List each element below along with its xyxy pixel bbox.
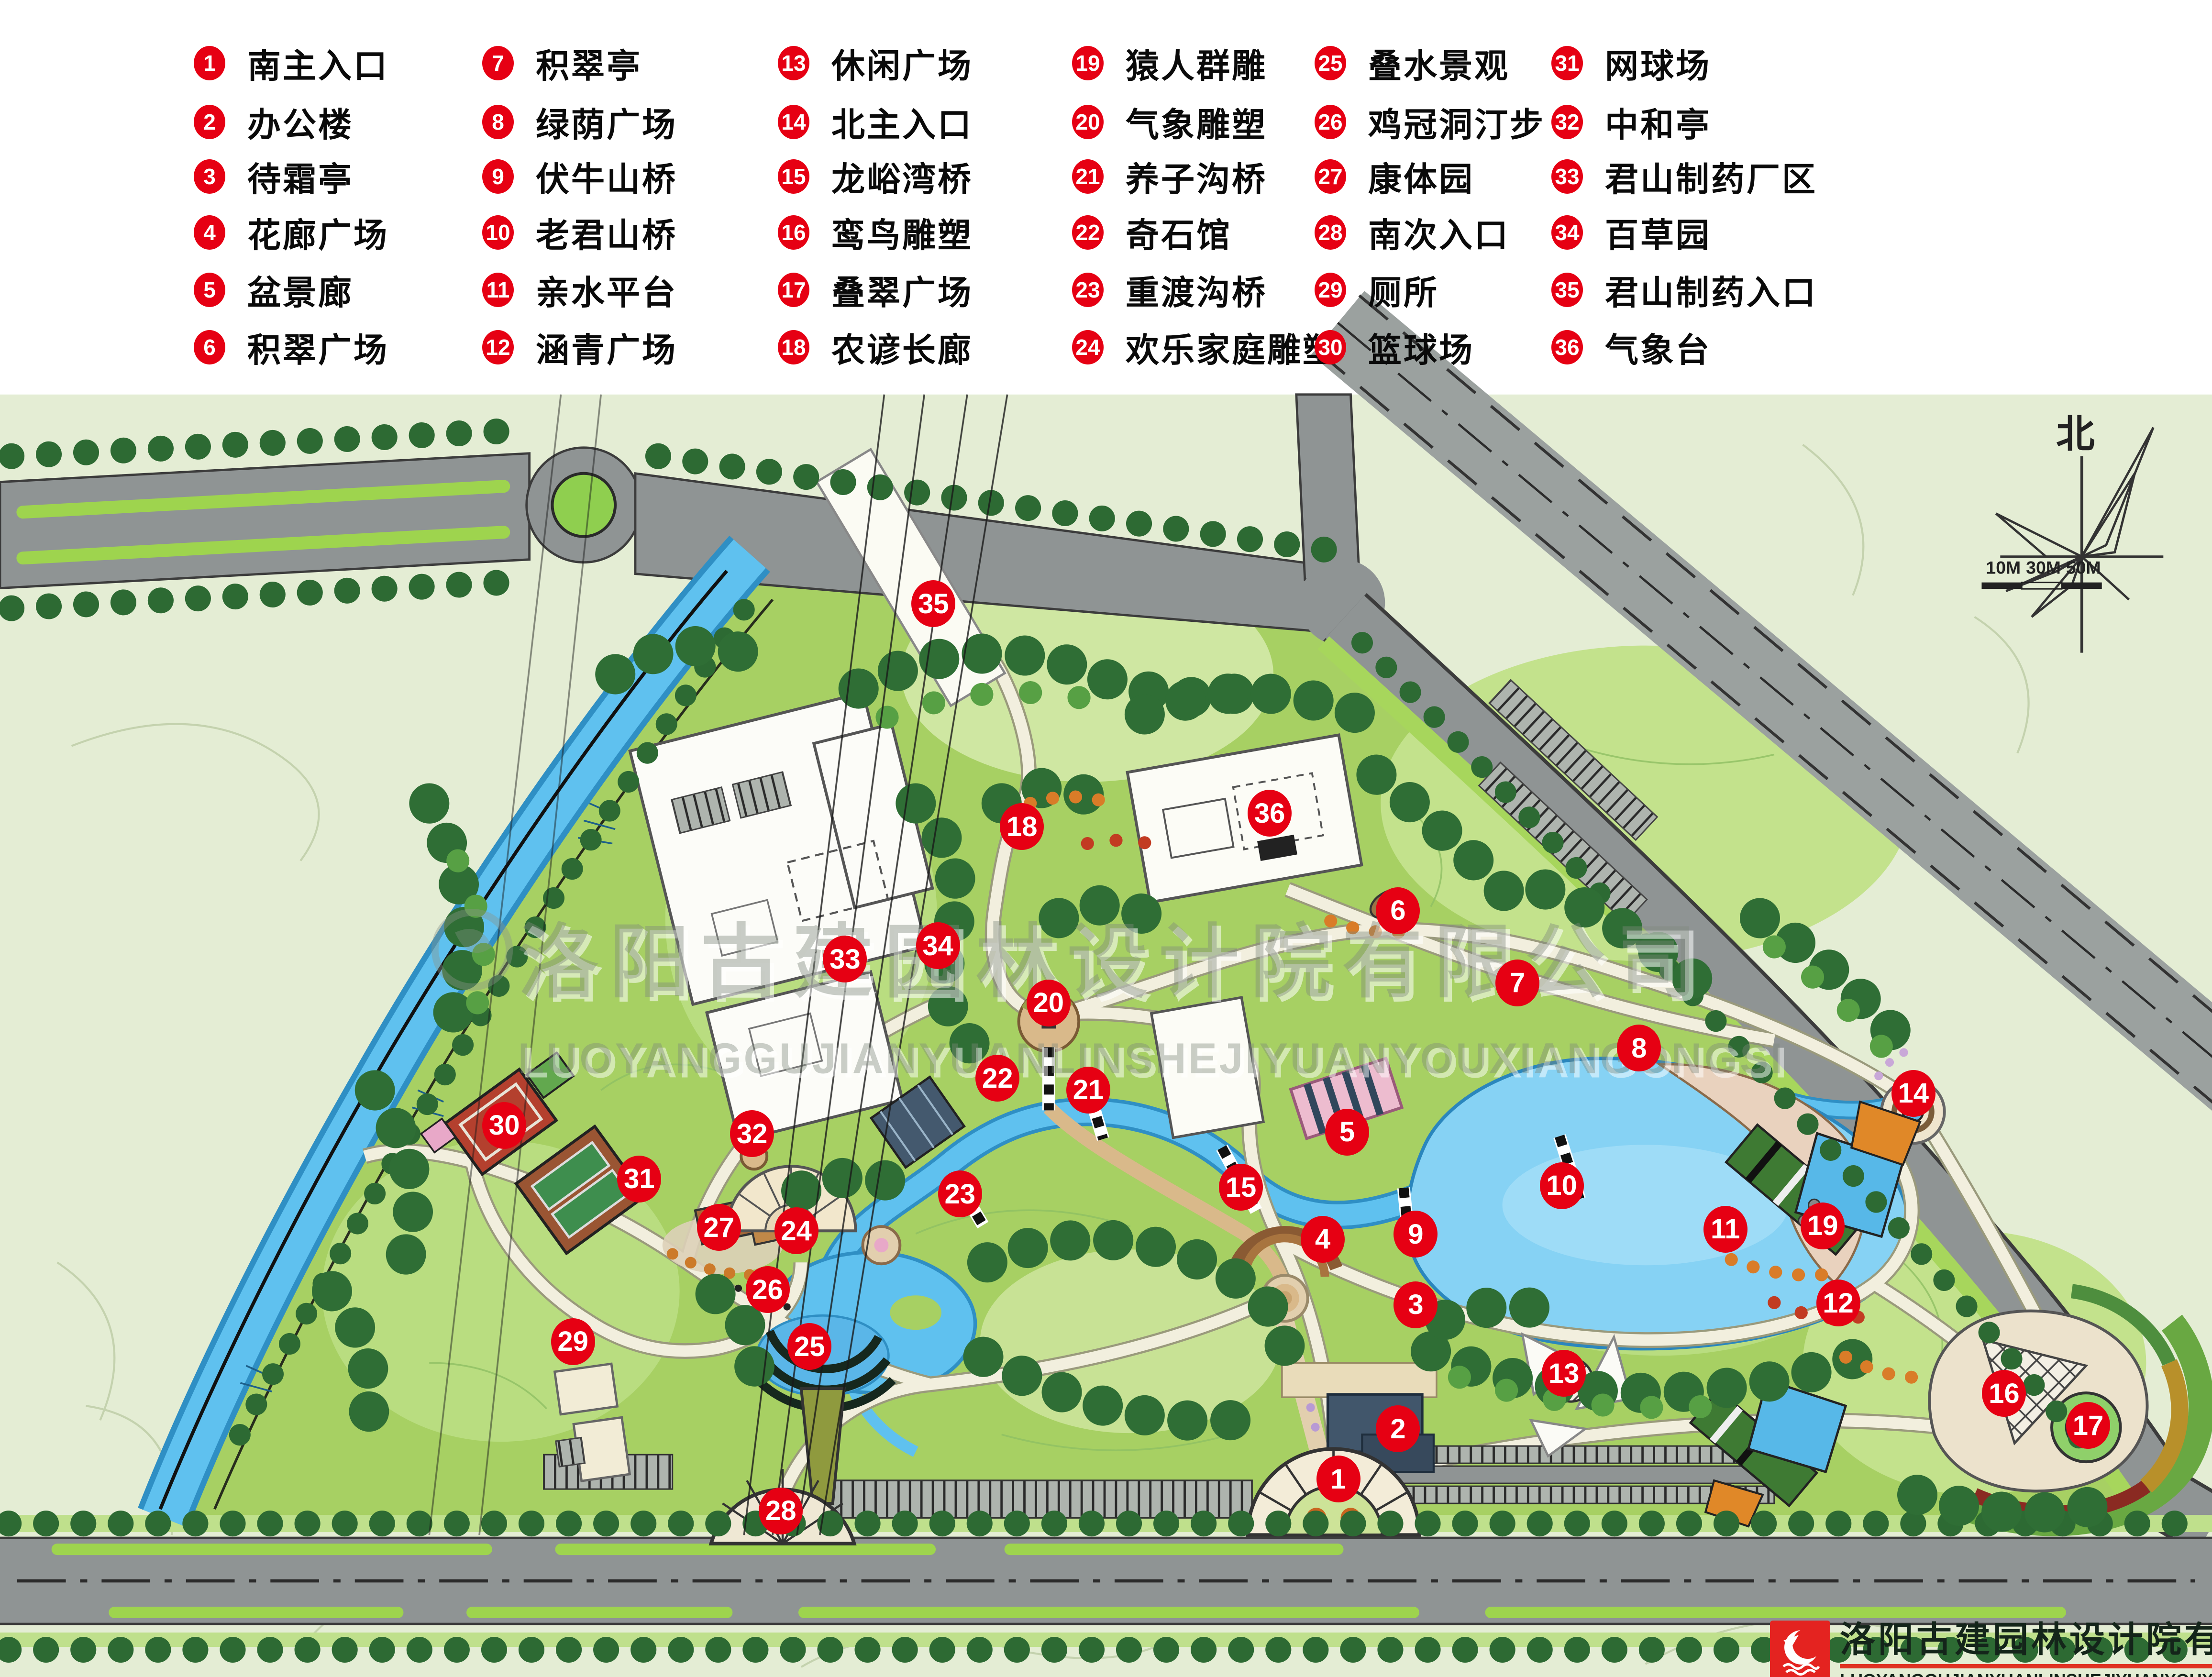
marker-number: 22 — [982, 1062, 1013, 1094]
marker-number: 9 — [1408, 1218, 1423, 1250]
marker-number: 6 — [1390, 894, 1405, 927]
map-marker-16: 16 — [1982, 1370, 2026, 1417]
marker-number: 24 — [781, 1215, 812, 1247]
map-marker-24: 24 — [774, 1207, 818, 1254]
map-marker-19: 19 — [1801, 1203, 1845, 1249]
map-marker-20: 20 — [1027, 980, 1071, 1026]
map-marker-11: 11 — [1703, 1206, 1747, 1253]
marker-number: 8 — [1631, 1032, 1647, 1064]
marker-number: 20 — [1033, 987, 1064, 1019]
map-marker-3: 3 — [1394, 1281, 1438, 1328]
company-name-en: LUOYANGGUJIANYUANLINSHEJIYUANYOUXIANGONG… — [1840, 1670, 2212, 1677]
company-brand: 洛阳古建园林设计院有限公司 LUOYANGGUJIANYUANLINSHEJIY… — [1770, 1611, 2212, 1677]
marker-number: 14 — [1898, 1077, 1929, 1109]
map-marker-21: 21 — [1066, 1067, 1110, 1114]
marker-number: 4 — [1315, 1223, 1330, 1255]
marker-number: 32 — [737, 1118, 768, 1150]
map-marker-26: 26 — [746, 1266, 790, 1313]
map-marker-27: 27 — [697, 1204, 741, 1251]
marker-number: 35 — [918, 588, 949, 620]
marker-number: 33 — [829, 943, 861, 975]
map-marker-7: 7 — [1495, 960, 1539, 1006]
map-marker-31: 31 — [617, 1156, 661, 1203]
map-marker-36: 36 — [1248, 790, 1292, 837]
marker-number: 28 — [765, 1495, 796, 1527]
marker-number: 10 — [1546, 1169, 1577, 1202]
map-marker-1: 1 — [1316, 1456, 1360, 1502]
map-marker-13: 13 — [1542, 1350, 1586, 1397]
map-marker-18: 18 — [1000, 803, 1044, 850]
marker-number: 7 — [1510, 967, 1525, 999]
map-marker-14: 14 — [1891, 1070, 1935, 1117]
map-marker-29: 29 — [551, 1318, 595, 1365]
marker-number: 25 — [794, 1331, 825, 1363]
marker-number: 18 — [1006, 811, 1038, 843]
marker-number: 29 — [557, 1325, 588, 1357]
marker-number: 13 — [1548, 1357, 1580, 1390]
company-logo-icon — [1770, 1621, 1830, 1677]
map-marker-2: 2 — [1376, 1405, 1420, 1452]
map-marker-17: 17 — [2066, 1402, 2110, 1449]
map-marker-15: 15 — [1219, 1164, 1263, 1211]
map-marker-12: 12 — [1816, 1280, 1860, 1326]
map-marker-35: 35 — [911, 580, 955, 627]
marker-number: 23 — [945, 1178, 976, 1210]
map-marker-28: 28 — [759, 1488, 803, 1534]
marker-number: 17 — [2073, 1410, 2104, 1442]
marker-number: 26 — [752, 1274, 783, 1306]
marker-number: 2 — [1390, 1413, 1405, 1445]
marker-number: 31 — [624, 1163, 655, 1195]
marker-number: 1 — [1330, 1463, 1346, 1495]
map-markers: 1234567891011121314151617181920212223242… — [0, 0, 2212, 1677]
company-name-cn: 洛阳古建园林设计院有限公司 — [1840, 1611, 2212, 1662]
brand-divider — [1840, 1664, 2212, 1668]
map-marker-34: 34 — [916, 922, 960, 969]
map-marker-32: 32 — [730, 1110, 774, 1157]
marker-number: 5 — [1339, 1116, 1355, 1148]
map-marker-22: 22 — [975, 1055, 1019, 1102]
map-marker-8: 8 — [1617, 1025, 1661, 1071]
marker-number: 11 — [1711, 1213, 1740, 1245]
map-marker-4: 4 — [1301, 1216, 1345, 1263]
marker-number: 21 — [1073, 1074, 1104, 1106]
marker-number: 19 — [1807, 1210, 1838, 1242]
marker-number: 3 — [1408, 1289, 1423, 1321]
marker-number: 36 — [1254, 797, 1285, 829]
map-marker-30: 30 — [482, 1102, 526, 1149]
marker-number: 34 — [922, 930, 953, 962]
map-marker-9: 9 — [1394, 1211, 1438, 1258]
marker-number: 27 — [704, 1212, 735, 1244]
marker-number: 16 — [1989, 1378, 2020, 1410]
map-marker-6: 6 — [1376, 887, 1420, 934]
map-marker-10: 10 — [1540, 1162, 1584, 1209]
map-marker-33: 33 — [823, 936, 867, 982]
marker-number: 12 — [1823, 1287, 1854, 1319]
map-marker-23: 23 — [938, 1170, 982, 1217]
map-marker-5: 5 — [1325, 1109, 1369, 1156]
marker-number: 30 — [489, 1109, 520, 1141]
marker-number: 15 — [1226, 1171, 1257, 1203]
map-marker-25: 25 — [787, 1323, 831, 1370]
